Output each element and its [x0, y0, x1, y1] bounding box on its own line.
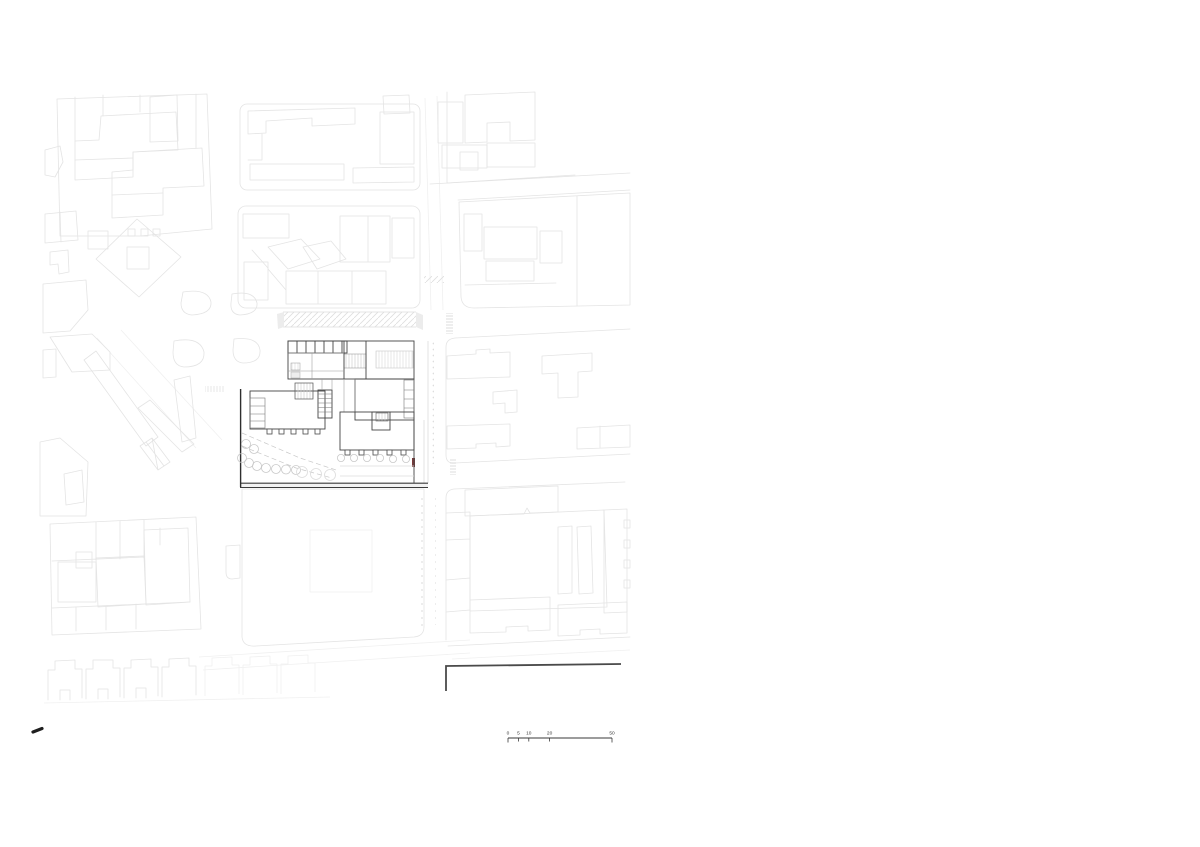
- north-volume: [288, 341, 414, 379]
- plaza-tree-rows: [416, 498, 424, 626]
- stair-hatch: [344, 354, 366, 368]
- city-block-northwest: [57, 94, 212, 236]
- central-stair: [318, 379, 332, 418]
- site-plan-drawing: 05102050: [0, 0, 1200, 847]
- rooflight-hatch: [376, 351, 413, 368]
- street-tree-row: [437, 342, 441, 464]
- street-islands: [173, 291, 260, 367]
- street-tree-row: [438, 495, 442, 625]
- entry-canopy-hatch: [295, 383, 313, 399]
- city-block-east-upper: [459, 193, 630, 308]
- plaza-block-south: [199, 489, 470, 670]
- city-fabric-context: [40, 92, 630, 703]
- stair-hatch: [376, 413, 388, 421]
- crosswalk-hatch: [450, 459, 456, 475]
- scale-label: 50: [609, 731, 615, 737]
- city-block-diamond: [88, 219, 181, 297]
- street-tree-row: [432, 495, 436, 625]
- scale-label: 20: [547, 731, 553, 737]
- west-volume: [250, 383, 325, 434]
- city-block-east: [430, 329, 630, 475]
- city-block-northeast: [438, 92, 575, 183]
- city-block-southeast: [432, 482, 630, 659]
- crosswalk-hatch: [424, 276, 444, 283]
- street-east-of-site: [424, 96, 630, 334]
- city-block-above-site: [238, 206, 420, 308]
- garden-planting: [238, 433, 415, 481]
- street-edge-line: [446, 664, 621, 691]
- city-block-north: [240, 95, 420, 190]
- scale-label: 0: [507, 731, 510, 737]
- crosswalk-hatch: [446, 313, 453, 334]
- main-building-plan: [238, 341, 415, 483]
- southeast-volume: [340, 412, 414, 483]
- scale-label: 10: [526, 731, 532, 737]
- sidewalk-hatch-strip: [277, 312, 423, 330]
- row-houses-south: [44, 655, 330, 703]
- scale-bar: 05102050: [507, 731, 615, 743]
- street-tree-row: [430, 342, 434, 464]
- small-stair-hatch: [291, 363, 300, 370]
- city-blocks-diagonal-west: [40, 330, 224, 516]
- city-blocks-left-edge: [43, 146, 88, 378]
- city-block-southwest: [50, 517, 201, 635]
- north-mark: [33, 729, 42, 733]
- site-plan-page: 05102050: [0, 0, 1200, 847]
- crosswalk-hatch: [205, 386, 224, 392]
- scale-label: 5: [517, 731, 520, 737]
